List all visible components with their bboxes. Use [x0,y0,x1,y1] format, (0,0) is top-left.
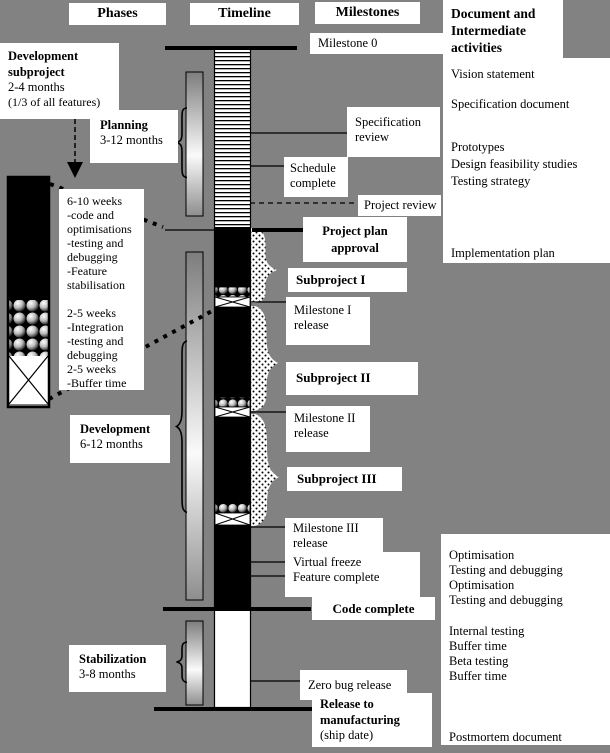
arrow-down-icon [67,162,83,178]
subproject-2-brace [250,306,278,411]
milestones-header: Milestones [315,2,420,24]
subproject-2-buffer-band [215,407,250,417]
endgame-black-segment [215,525,250,608]
subproject-1-black-segment [215,227,250,287]
detail-line: 2-5 weeks [67,306,144,320]
dev-subproject-arrow [67,119,83,178]
virtual-freeze-feature-complete-box: Virtual freeze Feature complete [285,552,420,597]
code-complete-line [163,607,311,611]
rtm-title: Release to manufacturing [320,696,426,728]
schedule-complete-box: Schedule complete [284,157,348,197]
detail-line [67,292,144,306]
development-brace-icon [177,341,188,513]
subproject-3-integration-band [215,503,250,513]
subproject-1-box: Subproject I [288,268,407,292]
planning-title: Planning [100,118,178,133]
detail-line: -code and [67,208,144,222]
specification-review-box: Specification review [347,107,440,157]
detail-line: -testing and [67,334,144,348]
subproject-detail-box: 6-10 weeks -code and optimisations -test… [59,189,144,390]
detail-integration-segment [9,300,48,356]
milestone0-box: Milestone 0 [310,33,443,54]
activity-item: Buffer time [449,669,507,684]
development-box: Development 6-12 months [70,415,170,463]
phases-header: Phases [69,3,166,25]
dev-subproject-duration: 2-4 months [8,80,115,95]
development-duration: 6-12 months [80,437,170,452]
stabilization-brace-icon [177,642,188,683]
detail-line: stabilisation [67,278,144,292]
document-item: Vision statement [451,67,535,82]
dev-subproject-title: Development subproject [8,48,115,80]
planning-duration: 3-12 months [100,133,178,148]
stabilization-title: Stabilization [79,652,166,667]
timeline-header: Timeline [190,3,299,25]
project-plan-approval-line [252,228,303,232]
planning-box: Planning 3-12 months [90,110,178,163]
dev-subproject-note: (1/3 of all features) [8,95,115,110]
subproject-1-buffer-band [215,297,250,307]
detail-buffer-segment [9,356,48,404]
feature-complete-label: Feature complete [293,570,420,585]
project-review-box: Project review [358,195,441,216]
activity-item: Beta testing [449,654,508,669]
detail-line: 2-5 weeks [67,362,144,376]
subproject-2-black-segment [215,307,250,397]
detail-code-segment [9,178,48,300]
code-complete-box: Code complete [312,597,435,620]
detail-line: -Buffer time [67,376,144,390]
detail-line: -Feature [67,264,144,278]
milestone-3-release-box: Milestone III release [285,518,383,552]
subproject-2-box: Subproject II [286,362,418,395]
stabilization-capsule [186,621,203,705]
dev-subproject-box: Development subproject 2-4 months (1/3 o… [0,43,119,119]
subproject-3-black-segment [215,417,250,503]
document-item: Prototypes [451,140,504,155]
milestone0-line [165,46,297,50]
detail-line: debugging [67,250,144,264]
detail-line: 6-10 weeks [67,194,144,208]
release-to-manufacturing-box: Release to manufacturing (ship date) [312,693,432,747]
subproject-braces [250,228,279,526]
documents-top-box: Vision statement Specification document … [443,58,610,263]
development-title: Development [80,422,170,437]
activity-item: Internal testing [449,624,524,639]
document-item: Design feasibility studies [451,157,577,172]
activity-item: Testing and debugging [449,563,563,578]
planning-striped-segment [215,49,250,227]
activity-item: Postmortem document [449,730,562,745]
ship-cycle-diagram: Phases Timeline Milestones Document and … [0,0,610,753]
planning-capsule [186,72,203,216]
subproject-detail-bar [8,177,49,407]
rtm-ship-date: (ship date) [320,728,426,743]
detail-line: debugging [67,348,144,362]
detail-line: -Integration [67,320,144,334]
stabilization-white-segment [215,611,250,707]
subproject-3-box: Subproject III [287,467,402,491]
subproject-3-buffer-band [215,513,250,525]
subproject-2-integration-band [215,397,250,407]
activity-item: Buffer time [449,639,507,654]
document-item: Specification document [451,97,569,112]
document-item: Testing strategy [451,174,530,189]
subproject-1-brace [250,228,277,303]
detail-line: -testing and [67,236,144,250]
stabilization-duration: 3-8 months [79,667,166,682]
planning-brace-icon [177,108,188,178]
documents-header: Document and Intermediate activities [443,0,563,58]
subproject-1-integration-band [215,287,250,297]
detail-line: optimisations [67,222,144,236]
release-to-manufacturing-line [154,707,312,711]
virtual-freeze-label: Virtual freeze [293,555,420,570]
stabilization-box: Stabilization 3-8 months [69,645,166,692]
document-item: Implementation plan [451,246,555,261]
milestone-1-release-box: Milestone I release [286,297,370,345]
project-plan-approval-box: Project plan approval [303,217,407,262]
activity-item: Testing and debugging [449,593,563,608]
activity-item: Optimisation [449,578,514,593]
activity-item: Optimisation [449,548,514,563]
subproject-3-brace [250,414,279,526]
documents-bottom-box: Optimisation Testing and debugging Optim… [441,534,610,745]
development-capsule [186,252,203,600]
milestone-2-release-box: Milestone II release [286,406,370,452]
